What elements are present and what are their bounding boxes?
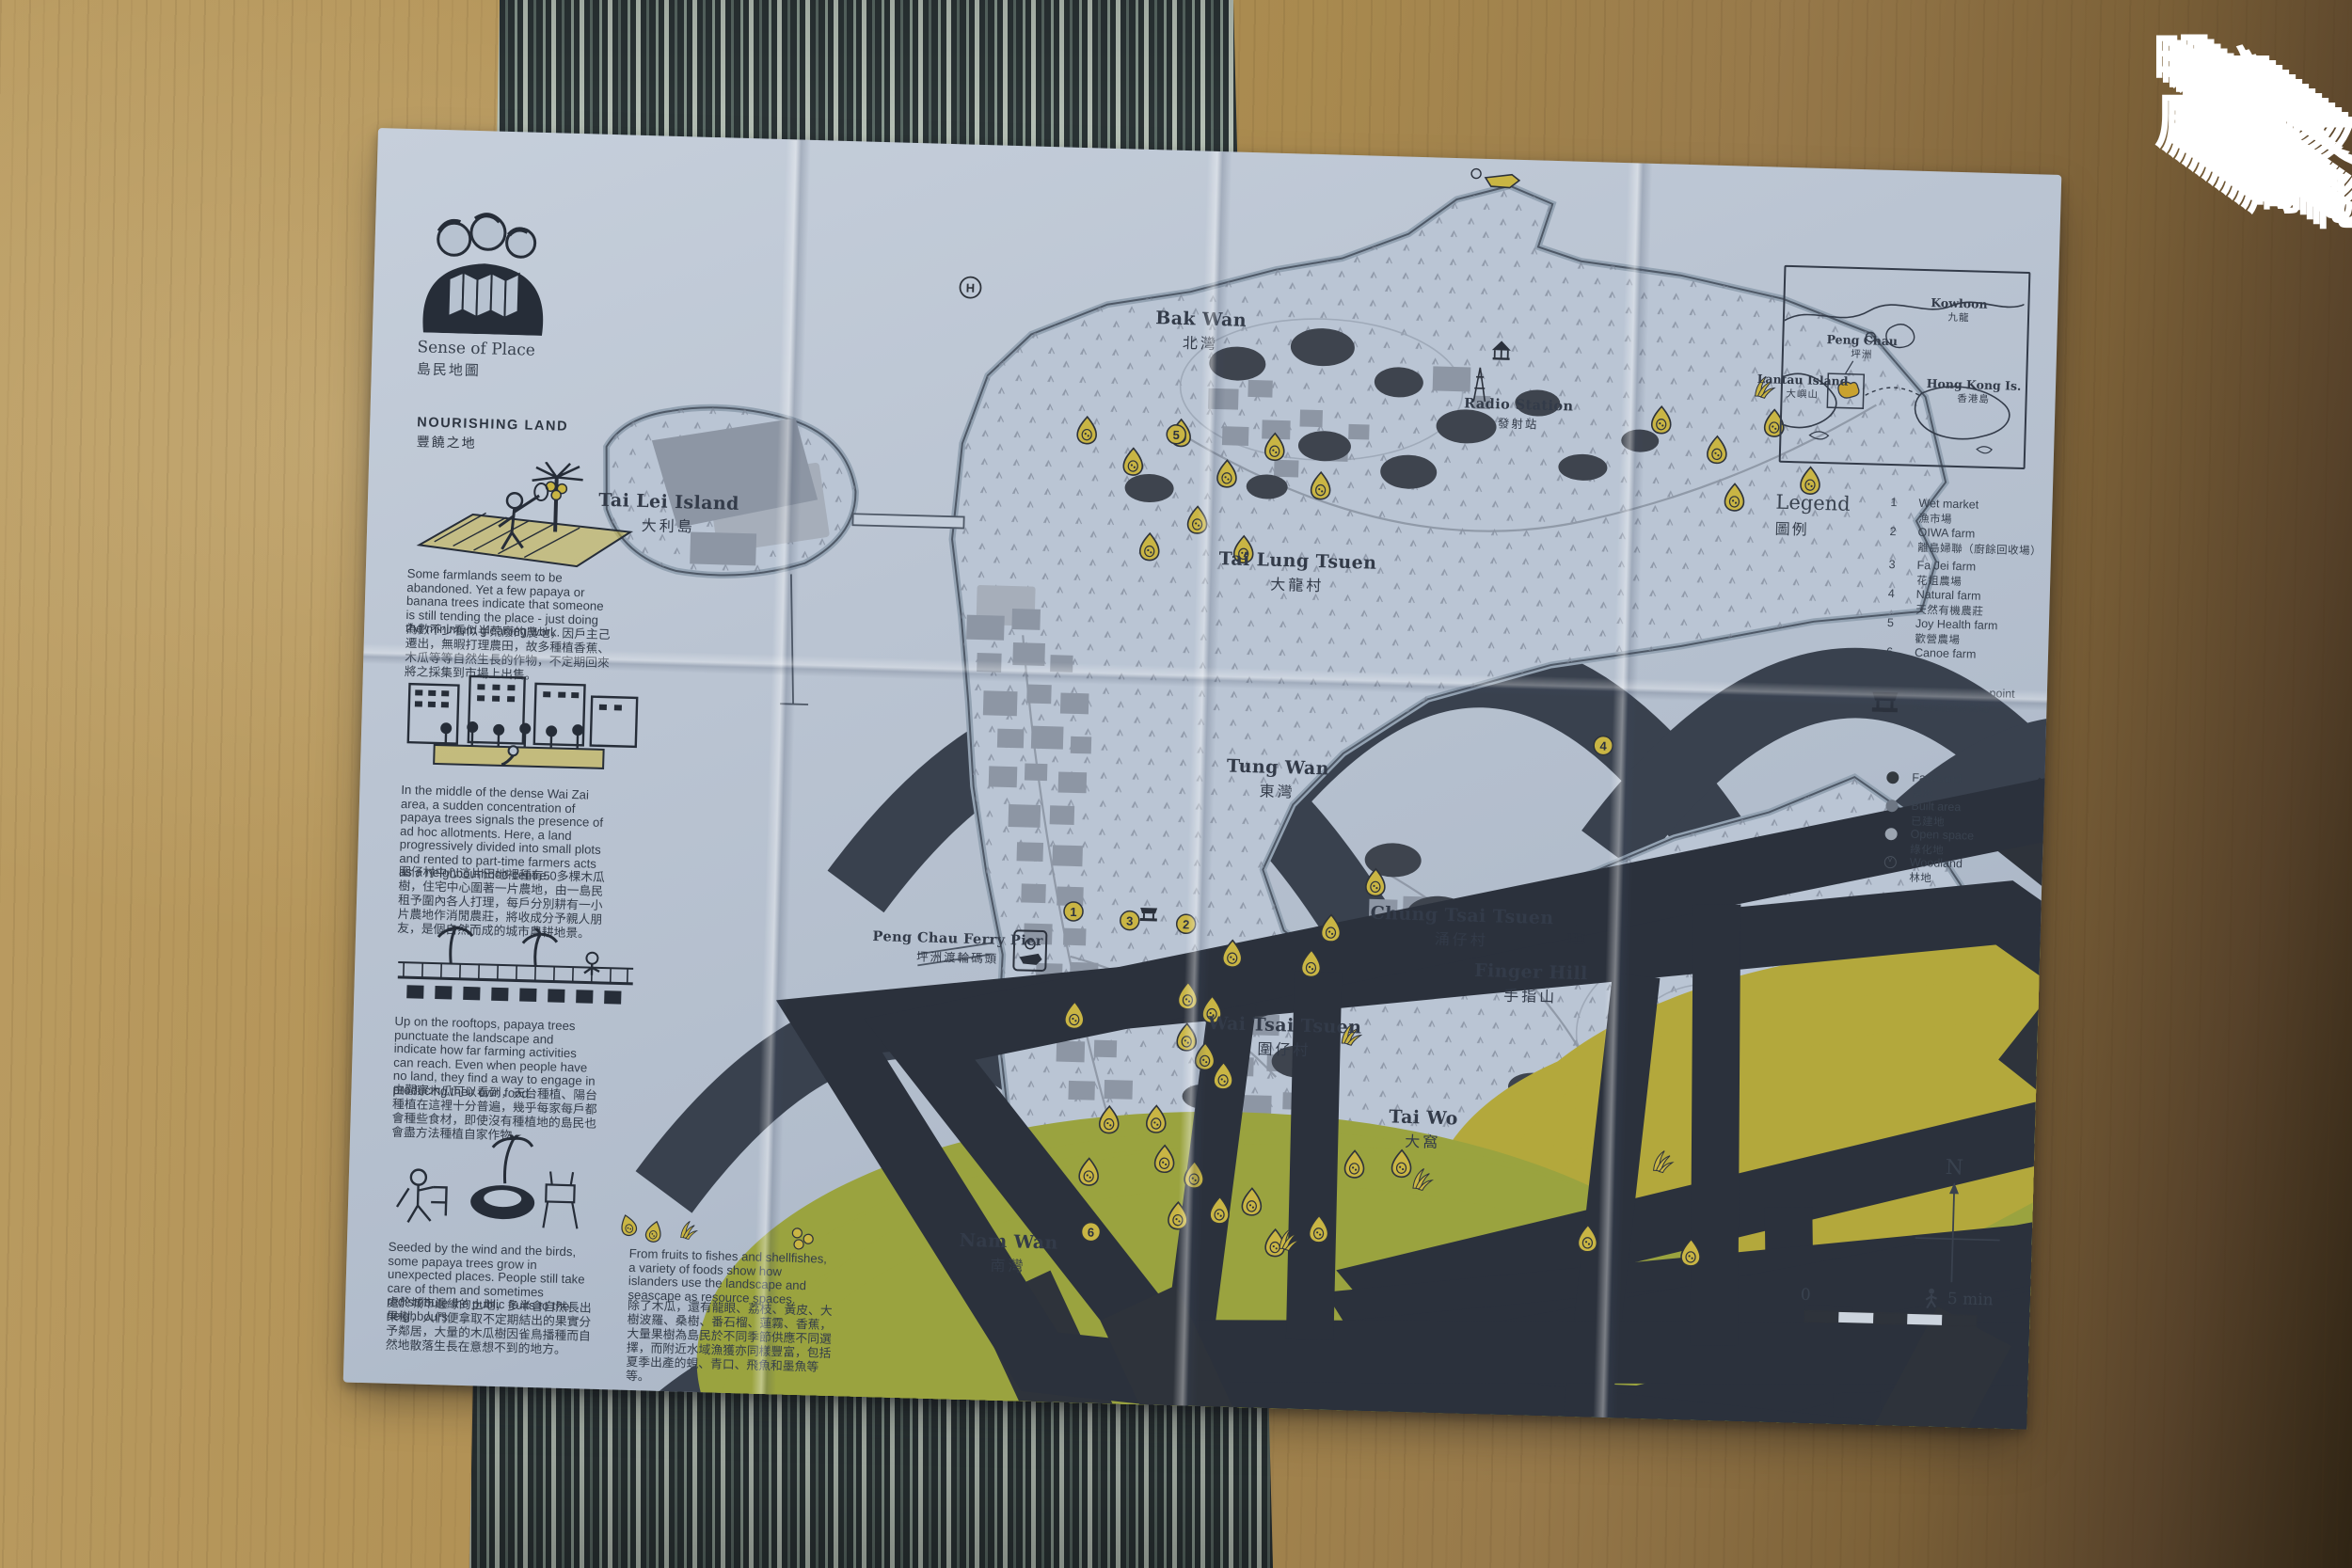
label-nam-wan: Nam Wan 南灣 [946,1229,1070,1277]
legend-selling-point: Farmer selling point農民流動售賣點 [1867,683,2015,716]
logo-char-man: 文 [2213,47,2271,105]
walking-person-icon [1923,1287,1941,1309]
svg-text:1: 1 [1070,905,1077,919]
paragraph-4-zh: 處於城市邊緣的土地，多半會自然長出果樹，人們便拿取不定期結出的果實分予鄰居，大量… [386,1295,596,1358]
legend-item-1: 1 Wet market漁市場 [1890,496,1979,528]
legend-area-built: Built area已建地 [1885,799,1962,830]
legend-item-4: 4 Natural farm天然有機農莊 [1887,587,1984,619]
scale-segment [1907,1314,1942,1325]
yellow-dinghy-icon [1471,168,1520,187]
logo-char-fa: 化 [2217,109,2275,167]
map-paper: 1 3 2 5 4 6 H [343,128,2062,1429]
legend-item-6: 6 Canoe farm [1886,645,1977,662]
legend-item-5: 5 Joy Health farm歡營農場 [1886,616,1997,648]
inset-label-kowloon: Kowloon 九龍 [1907,294,2011,325]
legend-area-woodland: Woodland林地 [1883,855,1963,886]
scale-segment [1839,1312,1874,1323]
legend-area-farmland: Farmland農地 [1886,770,1963,801]
svg-text:H: H [966,281,976,295]
scale-walk-block: 5 min [1923,1287,1994,1311]
logo-char-ming: 明 [2153,34,2211,92]
label-wai-tsai-tsuen: Wai Tsai Tsuen 圍仔村 [1200,1013,1370,1062]
logo-char-chow: 周 [2154,94,2213,152]
location-inset-map: Kowloon 九龍 Peng Chau 坪洲 Lantau Island 大嶼… [1779,265,2031,469]
farmer-selling-point-icon [1867,683,1902,712]
map-title-zh: 島民地圖 [417,358,535,381]
scale-segment [1873,1313,1908,1324]
helipad-icon: H [960,277,981,298]
paragraph-5-zh: 除了木瓜，還有龍眼、荔枝、黃皮、大樹波羅、桑樹、番石榴、蓮霧、香蕉，大量果樹為島… [626,1298,836,1389]
svg-text:2: 2 [1183,917,1190,931]
label-tung-wan: Tung Wan 東灣 [1216,755,1339,803]
farmland-swatch [1886,771,1899,784]
scale-walk-label: 5 min [1947,1290,1994,1309]
label-bak-wan: Bak Wan 北灣 [1144,308,1258,355]
section-heading: NOURISHING LAND 豐饒之地 [416,415,568,454]
islanders-reading-map-illustration [412,191,557,336]
tyre-planter-illustration [390,1132,591,1237]
map-title-en: Sense of Place [417,338,535,359]
open-space-swatch [1884,828,1897,840]
map-title-block: Sense of Place 島民地圖 [417,338,536,381]
label-ferry-pier: Peng Chau Ferry Pier 坪洲渡輪碼頭 [858,928,1057,969]
section-heading-en: NOURISHING LAND [417,415,568,434]
label-radio-station: Radio Station 發射站 [1442,395,1594,434]
scale-zero-label: 0 [1801,1286,1811,1305]
label-tai-lei-island: Tai Lei Island 大利島 [583,489,754,538]
scale-segment [1804,1311,1839,1323]
legend-area-open-space: Open space綠化地 [1884,827,1974,859]
inset-label-hong-kong: Hong Kong Is. 香港島 [1921,376,2026,407]
compass-needle [1908,1176,2015,1301]
woodland-swatch [1884,856,1897,868]
label-tai-lung-tsuen: Tai Lung Tsuen 大龍村 [1213,548,1383,597]
rooftop-garden-illustration [393,925,638,1012]
scale-segment [1942,1315,1977,1326]
built-area-swatch [1885,800,1898,812]
inset-label-lantau: Lantau Island 大嶼山 [1751,372,1855,403]
photo-scene: 1 3 2 5 4 6 H [0,0,2352,1568]
label-finger-hill: Finger Hill 手指山 [1454,959,1606,1007]
svg-text:4: 4 [1599,739,1607,753]
svg-text:5: 5 [1172,428,1180,442]
urban-allotment-illustration [400,671,645,775]
legend-item-2: 2 OIWA farm離島婦聯（廚餘回收場） [1889,525,2059,559]
label-tai-wo: Tai Wo 大窩 [1361,1106,1485,1154]
label-chung-tsai-tsuen: Chung Tsai Tsuen 涌仔村 [1367,903,1556,953]
svg-text:6: 6 [1088,1226,1095,1240]
mingpao-culture-logo: 明 文 周 化 [2153,24,2331,203]
legend-item-3: 3 Fa Jei farm花姐農場 [1888,558,1976,590]
svg-text:3: 3 [1126,914,1134,928]
legend-title: Legend 圖例 [1774,491,1851,541]
inset-label-peng-chau: Peng Chau 坪洲 [1810,332,1915,363]
